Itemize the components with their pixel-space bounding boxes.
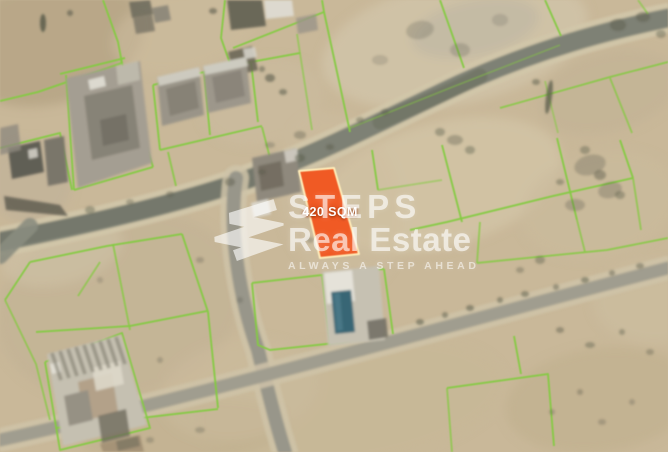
- listing-satellite-image: 420 SQM STEPS Real Estate ALWAYS A STEP …: [0, 0, 668, 452]
- satellite-map: [0, 0, 668, 452]
- plot-area-label: 420 SQM: [302, 205, 358, 219]
